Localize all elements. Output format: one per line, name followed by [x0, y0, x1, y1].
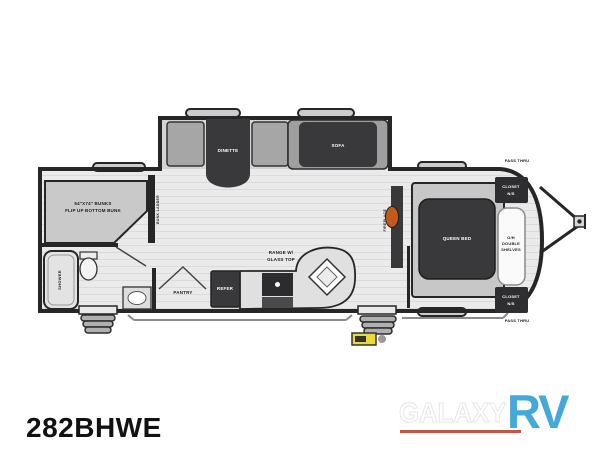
range-burner [275, 282, 280, 287]
closet-top-label-line1: CLOSET [502, 185, 519, 189]
watermark-underline [400, 430, 521, 433]
oven [262, 297, 293, 308]
bunks-label-line1: 54"X74" BUNKS [74, 202, 111, 207]
queen-bed-label: QUEEN BED [443, 237, 472, 242]
closet-bottom-label-line1: CLOSET [502, 295, 519, 299]
bedroom-wall [407, 246, 410, 308]
closet-bottom-label-line2: N/S [507, 302, 514, 306]
dinette-bench-left [167, 122, 204, 166]
shower-label: SHOWER [55, 256, 65, 304]
bath-sink [128, 292, 146, 305]
bath-divider-wall [152, 268, 156, 311]
manufacturer-badge-mark [355, 336, 366, 342]
closet-top [495, 177, 528, 203]
closet-bottom [495, 287, 528, 313]
range-label-line2: GLASS TOP [267, 258, 295, 263]
model-number: 282BHWE [26, 412, 162, 444]
main-entry-door [358, 306, 396, 314]
pantry-label: PANTRY [173, 291, 192, 296]
rear-entry-steps [81, 315, 115, 333]
hitch-a-frame [540, 187, 585, 253]
pass-thru-top-label: PASS THRU [505, 159, 530, 163]
shelves-label-line1: O/H [507, 236, 515, 240]
floorplan-page: DINETTE SOFA 54"X74" BUNKS FLIP UP BOTTO… [0, 0, 614, 460]
slide-rail-left [186, 109, 240, 117]
dinette-bench-right [252, 122, 288, 166]
closet-top-label-line2: N/S [507, 192, 514, 196]
range-label-line1: RANGE W/ [269, 251, 294, 256]
bunks-label-line2: FLIP UP BOTTOM BUNK [65, 209, 121, 214]
bath-wall [40, 243, 118, 247]
sofa-label: SOFA [331, 144, 344, 149]
bunk-ladder-wall [148, 175, 155, 243]
slide-rail-right [298, 109, 354, 117]
refer-label: REFER [217, 287, 233, 292]
shelves-label-line2: DOUBLE [502, 242, 520, 246]
bunk-ladder-label: BUNK LADDER [155, 177, 163, 241]
pass-thru-bottom-label: PASS THRU [505, 319, 530, 323]
dinette-table [206, 119, 250, 188]
fireplace-label: FIREPLACE [381, 198, 390, 242]
dinette-label: DINETTE [218, 149, 239, 154]
rear-entry-door [79, 306, 117, 314]
toilet-bowl [80, 258, 97, 280]
main-entry-steps [360, 316, 396, 334]
watermark-galaxy: GALAXY [399, 397, 506, 429]
badge-dot [378, 335, 386, 343]
shelves-label-line3: SHELVES [501, 248, 521, 252]
